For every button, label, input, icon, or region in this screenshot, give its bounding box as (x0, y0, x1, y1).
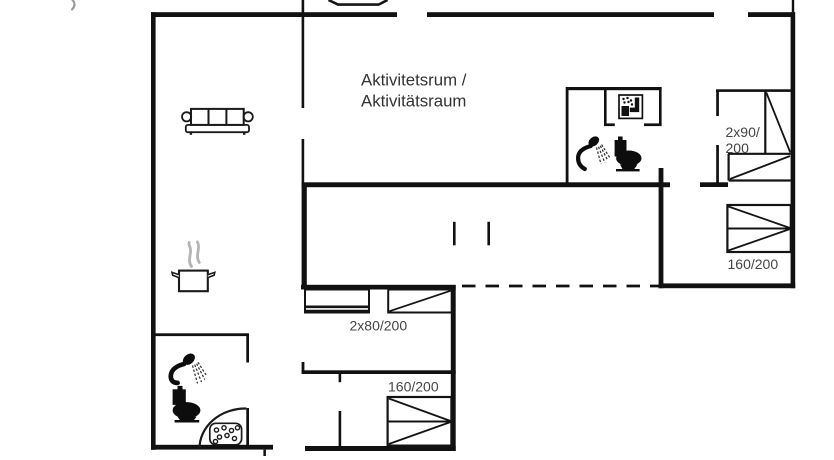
svg-text:160/200: 160/200 (728, 256, 779, 272)
svg-text:Aktivitetsrum /: Aktivitetsrum / (361, 70, 467, 89)
svg-text:Aktivitätsraum: Aktivitätsraum (361, 91, 466, 110)
svg-text:160/200: 160/200 (388, 378, 439, 394)
svg-text:2x80/200: 2x80/200 (350, 317, 408, 333)
svg-text:200: 200 (726, 140, 750, 156)
svg-text:2x90/: 2x90/ (726, 124, 760, 140)
